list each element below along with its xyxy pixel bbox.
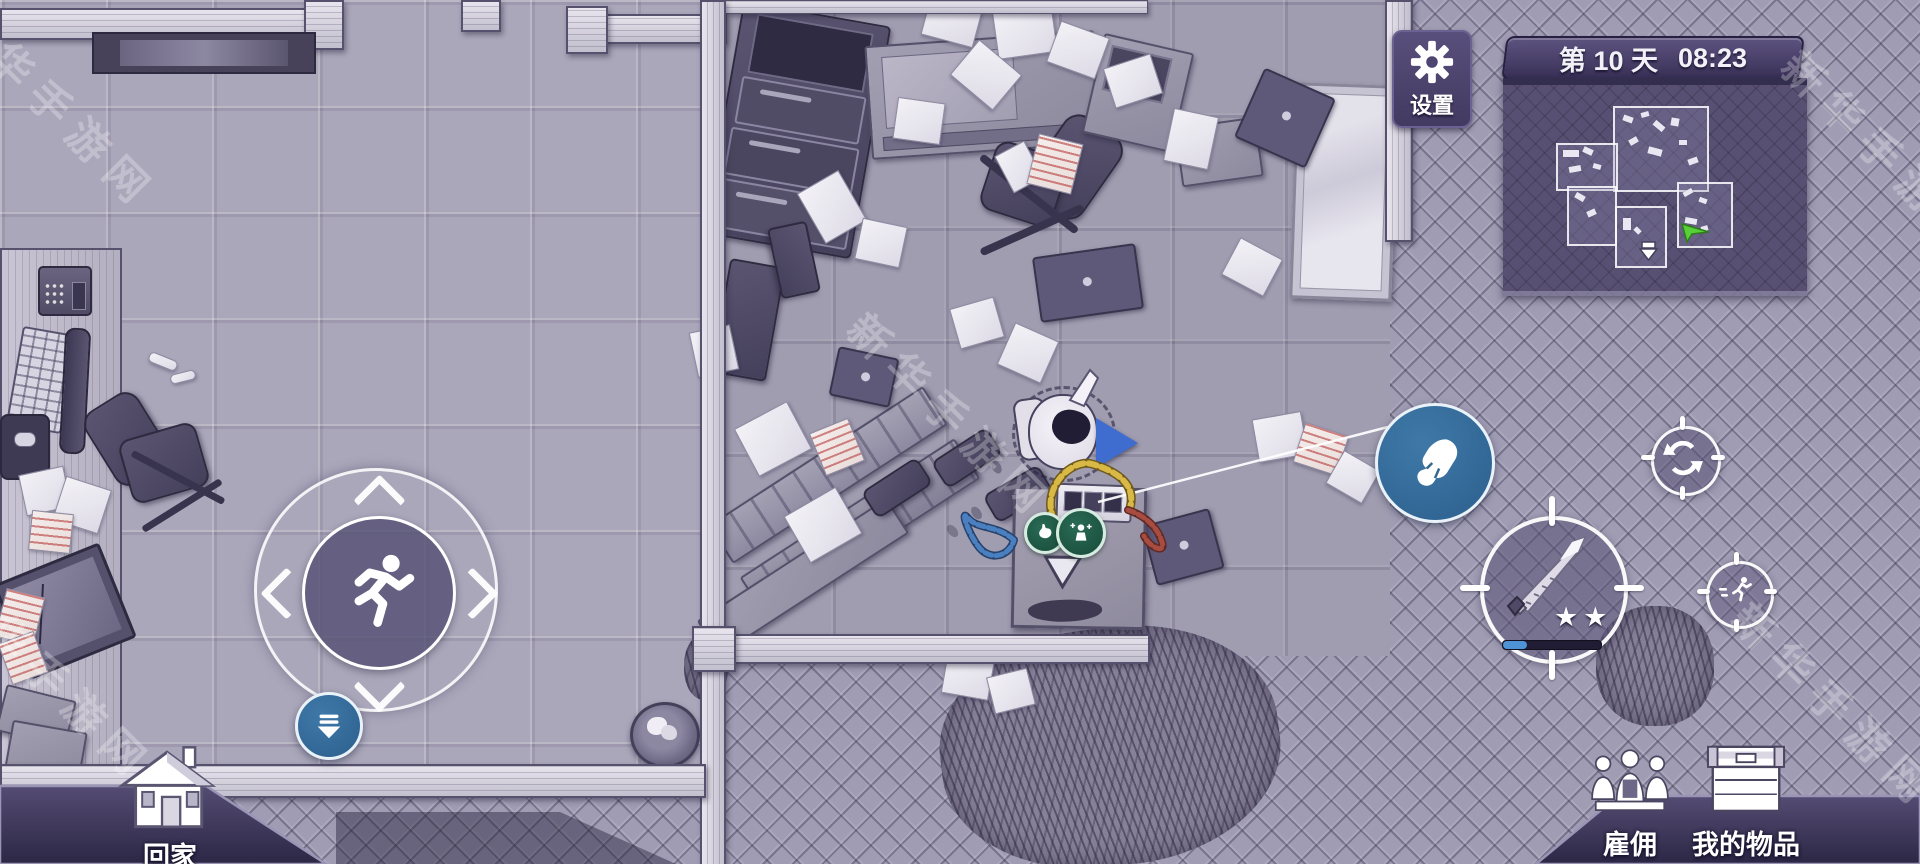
wall-beam [722,634,1150,664]
durability-fill [1503,641,1527,649]
settings-label: 设置 [1394,88,1470,120]
telephone [38,266,92,316]
stamped-paper [28,510,74,554]
my-items-label: 我的物品 [1686,823,1806,862]
wall-beam [718,0,1148,14]
minimap-player-arrow [1681,220,1711,244]
settings-button[interactable]: 设置 [1392,30,1472,128]
movement-joystick[interactable] [254,468,498,712]
minimap-top-strip [1503,78,1807,85]
trash-bin [630,702,700,768]
runner-icon [336,550,422,636]
home-button[interactable]: 回家 [112,744,228,860]
direction-flag [1096,418,1138,468]
gear-icon [1409,39,1455,85]
attack-button[interactable]: ★★ [1458,494,1646,682]
clock-time: 08:23 [1678,43,1747,74]
poison-icon [1068,520,1094,546]
wall-vertical [700,0,726,864]
pickup-button[interactable] [295,692,363,760]
home-label: 回家 [112,835,228,864]
day-counter: 第 10 天 [1559,39,1658,78]
hand-grab-icon [1402,430,1468,496]
hire-button[interactable]: 雇佣 [1578,746,1682,858]
wall-post [461,0,501,32]
wall-beam [0,764,706,798]
poison-status-icon [1056,508,1106,558]
house-icon [112,744,222,830]
swap-arrows-icon [1662,437,1704,479]
my-items-button[interactable]: 我的物品 [1686,742,1806,858]
ceiling-vent [92,32,316,74]
day-time-bar: 第 10 天 08:23 [1504,36,1802,80]
joystick-knob[interactable] [302,516,456,670]
game-viewport[interactable]: 设置 第 10 天 08:23 [0,0,1920,864]
sprint-runner-icon [1717,573,1757,611]
minimap-bottom-strip [1503,291,1807,296]
weapon-star-rating: ★★ [1554,602,1612,633]
hire-label: 雇佣 [1578,823,1682,862]
weapon-durability-bar [1502,640,1602,650]
switch-weapon-button[interactable] [1641,416,1725,500]
paper [892,97,945,145]
minimap-marker-icon [1639,240,1659,262]
stomach-icon [1034,522,1056,544]
wall-junction [692,626,736,672]
collect-arrow-icon [312,709,346,743]
sprint-button[interactable] [1697,552,1777,632]
people-icon [1586,746,1674,818]
minimap[interactable] [1503,78,1807,296]
chest-icon [1703,742,1789,818]
wall-post [566,6,608,54]
